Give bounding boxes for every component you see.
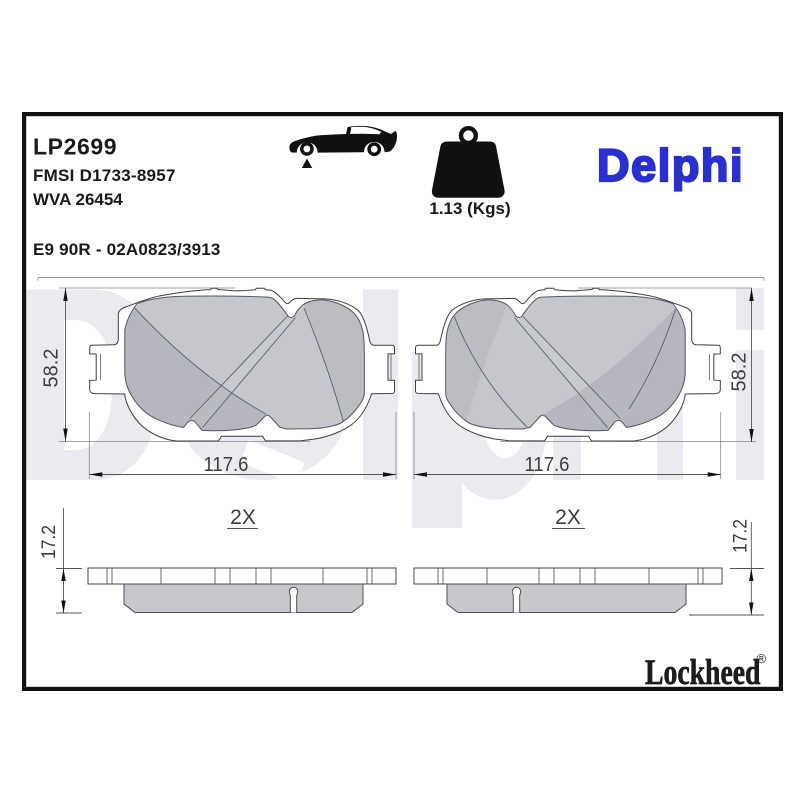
- svg-text:58.2: 58.2: [41, 349, 63, 388]
- svg-text:2X: 2X: [230, 506, 256, 529]
- svg-text:117.6: 117.6: [204, 454, 249, 476]
- svg-text:17.2: 17.2: [731, 519, 752, 553]
- svg-text:58.2: 58.2: [729, 353, 751, 392]
- svg-text:LP2699: LP2699: [33, 134, 117, 160]
- svg-text:117.6: 117.6: [525, 454, 570, 476]
- svg-text:17.2: 17.2: [39, 525, 60, 559]
- svg-text:FMSI D1733-8957: FMSI D1733-8957: [33, 166, 176, 185]
- svg-text:Delphi: Delphi: [597, 140, 744, 191]
- svg-text:1.13 (Kgs): 1.13 (Kgs): [429, 199, 510, 218]
- svg-text:E9 90R - 02A0823/3913: E9 90R - 02A0823/3913: [33, 240, 221, 259]
- svg-text:®: ®: [757, 651, 767, 666]
- svg-text:WVA 26454: WVA 26454: [33, 190, 123, 209]
- svg-text:2X: 2X: [555, 506, 581, 529]
- svg-text:Lockheed: Lockheed: [645, 652, 761, 692]
